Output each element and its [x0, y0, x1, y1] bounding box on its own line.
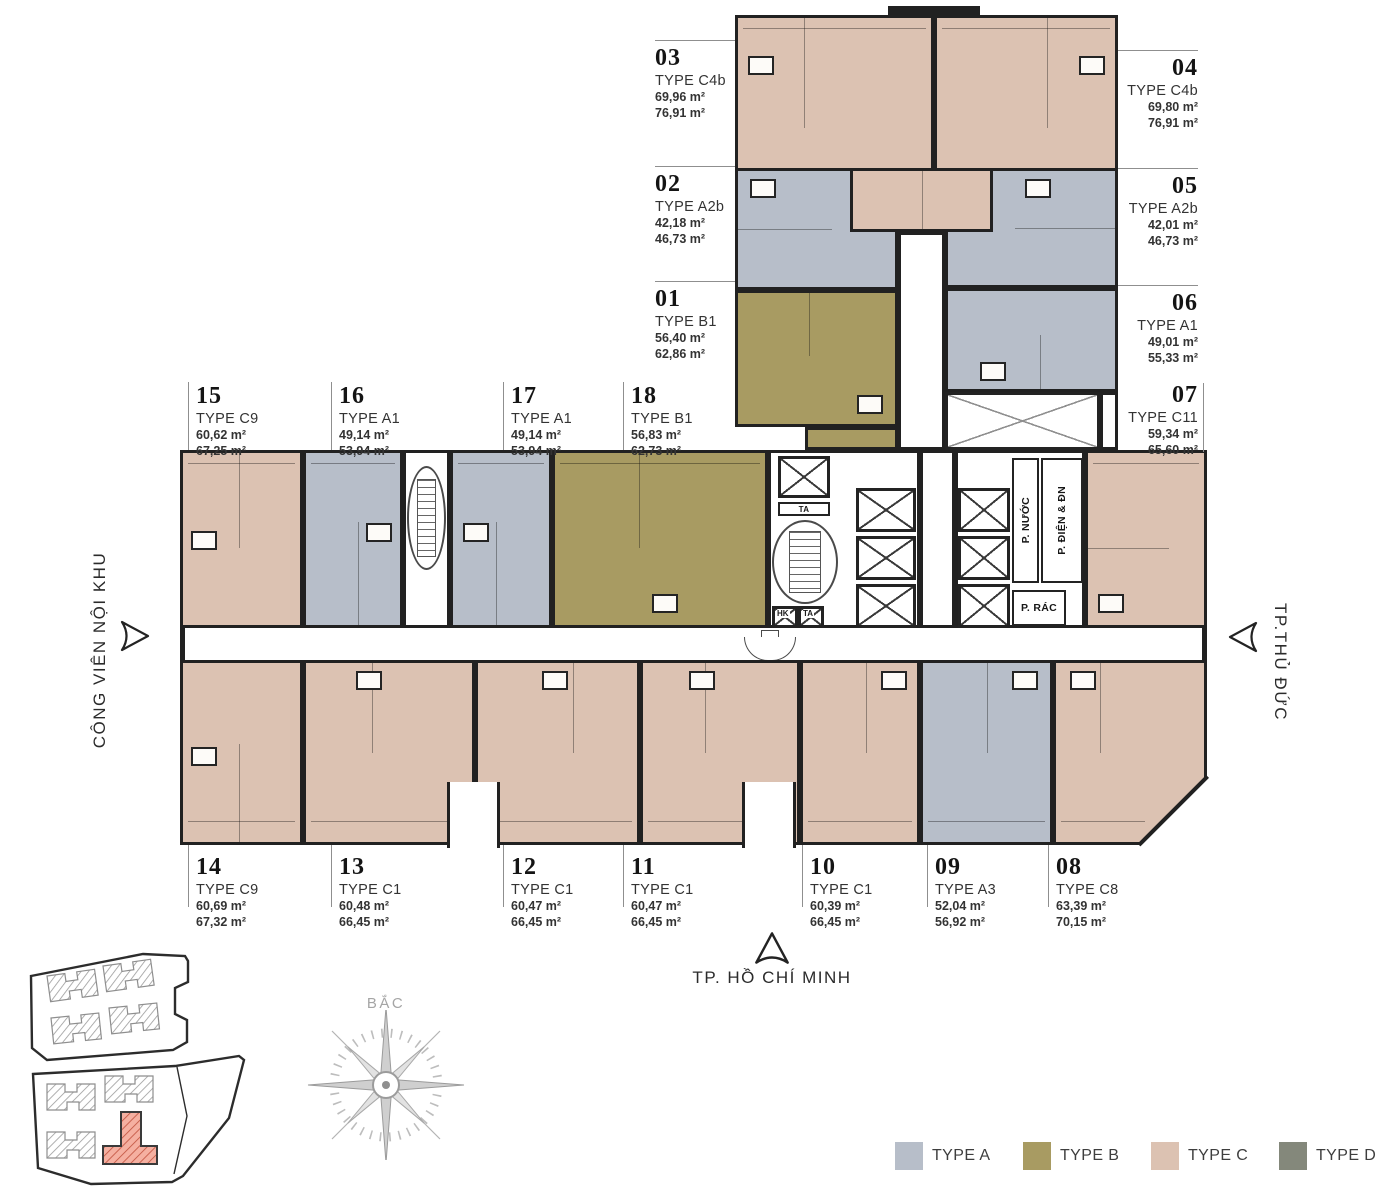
unit-11-label: 11 TYPE C1 60,47 m² 66,45 m²: [631, 855, 721, 931]
unit-area-net: 56,40 m²: [655, 330, 735, 346]
callout-line: [188, 382, 189, 450]
elevator-hk-icon: HK: [772, 606, 798, 628]
unit-type: TYPE C4b: [1118, 83, 1198, 99]
elevator-shaft-icon: [856, 536, 916, 580]
electrical-room: P. ĐIỆN & ĐN: [1041, 458, 1083, 583]
unit-area-gross: 67,32 m²: [196, 914, 286, 930]
unit-area-net: 49,14 m²: [339, 427, 429, 443]
floor-plan-page: TA HK TA P. NƯỚC P. ĐIỆN & ĐN P. RÁC: [0, 0, 1377, 1199]
unit-number: 01: [655, 287, 735, 312]
view-marker-west-icon: [120, 619, 150, 653]
unit-number: 16: [339, 384, 429, 409]
elevator-shaft-icon: [958, 488, 1010, 532]
unit-17: [450, 450, 552, 628]
callout-line: [331, 845, 332, 907]
legend-swatch-type-a: [895, 1142, 923, 1170]
unit-number: 10: [810, 855, 900, 880]
unit-14-label: 14 TYPE C9 60,69 m² 67,32 m²: [196, 855, 286, 931]
unit-area-gross: 66,45 m²: [511, 914, 601, 930]
unit-16-label: 16 TYPE A1 49,14 m² 53,94 m²: [339, 384, 429, 460]
unit-type: TYPE C8: [1056, 882, 1146, 898]
core-center-lobby: [920, 450, 955, 628]
bottom-notch: [447, 782, 500, 848]
unit-07: [1085, 450, 1207, 628]
unit-15-label: 15 TYPE C9 60,62 m² 67,25 m²: [196, 384, 286, 460]
unit-area-net: 69,80 m²: [1118, 99, 1198, 115]
unit-type: TYPE C11: [1124, 410, 1198, 426]
unit-area-net: 42,01 m²: [1118, 217, 1198, 233]
unit-number: 02: [655, 172, 735, 197]
unit-type: TYPE A2b: [1118, 201, 1198, 217]
unit-18-label: 18 TYPE B1 56,83 m² 62,73 m²: [631, 384, 721, 460]
view-marker-south-icon: [753, 931, 791, 965]
callout-line: [1048, 845, 1049, 907]
unit-03-label: 03 TYPE C4b 69,96 m² 76,91 m²: [655, 40, 735, 122]
unit-area-net: 60,47 m²: [511, 898, 601, 914]
unit-area-net: 60,48 m²: [339, 898, 429, 914]
unit-01: [735, 290, 898, 427]
unit-area-net: 60,69 m²: [196, 898, 286, 914]
tower-corridor: [898, 232, 945, 450]
unit-type: TYPE C1: [810, 882, 900, 898]
unit-13-label: 13 TYPE C1 60,48 m² 66,45 m²: [339, 855, 429, 931]
tower-center-kitchen-strip: [850, 168, 993, 232]
view-marker-east-icon: [1228, 620, 1258, 654]
unit-area-gross: 66,45 m²: [339, 914, 429, 930]
callout-line: [1203, 383, 1204, 452]
unit-type: TYPE C4b: [655, 73, 735, 89]
unit-number: 08: [1056, 855, 1146, 880]
unit-02-label: 02 TYPE A2b 42,18 m² 46,73 m²: [655, 166, 735, 248]
unit-10: [800, 660, 920, 845]
callout-line: [188, 845, 189, 907]
unit-type: TYPE A1: [511, 411, 601, 427]
callout-line: [503, 845, 504, 907]
elevator-ta-label: TA: [799, 505, 810, 514]
east-direction-label: TP.THỦ ĐỨC: [1270, 603, 1290, 721]
unit-number: 06: [1118, 291, 1198, 316]
corridor-lamp-arc-icon: [744, 637, 796, 661]
unit-area-gross: 66,45 m²: [631, 914, 721, 930]
elevator-shaft-icon: [958, 536, 1010, 580]
callout-line: [331, 382, 332, 450]
unit-type: TYPE A1: [1118, 318, 1198, 334]
unit-06-label: 06 TYPE A1 49,01 m² 55,33 m²: [1118, 285, 1198, 367]
unit-area-gross: 67,25 m²: [196, 443, 286, 459]
legend-label-type-d: TYPE D: [1316, 1142, 1376, 1170]
unit-12-label: 12 TYPE C1 60,47 m² 66,45 m²: [511, 855, 601, 931]
unit-area-gross: 62,73 m²: [631, 443, 721, 459]
unit-area-net: 49,01 m²: [1118, 334, 1198, 350]
unit-type: TYPE C9: [196, 411, 286, 427]
unit-08-label: 08 TYPE C8 63,39 m² 70,15 m²: [1056, 855, 1146, 931]
unit-type: TYPE A1: [339, 411, 429, 427]
legend-label-type-b: TYPE B: [1060, 1142, 1119, 1170]
elevator-shaft-icon: [856, 584, 916, 628]
unit-type: TYPE B1: [631, 411, 721, 427]
legend-label-type-c: TYPE C: [1188, 1142, 1248, 1170]
elevator-shaft-icon: [778, 456, 830, 498]
unit-type: TYPE B1: [655, 314, 735, 330]
unit-10-label: 10 TYPE C1 60,39 m² 66,45 m²: [810, 855, 900, 931]
unit-area-gross: 46,73 m²: [1118, 233, 1198, 249]
unit-area-gross: 55,33 m²: [1118, 350, 1198, 366]
unit-04-label: 04 TYPE C4b 69,80 m² 76,91 m²: [1118, 50, 1198, 132]
unit-number: 17: [511, 384, 601, 409]
unit-01-label: 01 TYPE B1 56,40 m² 62,86 m²: [655, 281, 735, 363]
unit-area-net: 59,34 m²: [1124, 426, 1198, 442]
unit-01-extension: [805, 427, 898, 450]
tower-void-side: [1100, 392, 1118, 450]
legend-swatch-type-c: [1151, 1142, 1179, 1170]
elevator-ta2-label: TA: [802, 610, 814, 618]
unit-number: 14: [196, 855, 286, 880]
unit-05-label: 05 TYPE A2b 42,01 m² 46,73 m²: [1118, 168, 1198, 250]
legend-label-type-a: TYPE A: [932, 1142, 990, 1170]
corridor-west-cap: [180, 628, 185, 660]
unit-14: [180, 660, 303, 845]
unit-area-net: 60,62 m²: [196, 427, 286, 443]
unit-09-label: 09 TYPE A3 52,04 m² 56,92 m²: [935, 855, 1025, 931]
unit-area-gross: 46,73 m²: [655, 231, 735, 247]
unit-area-net: 60,47 m²: [631, 898, 721, 914]
site-key-plan: [25, 946, 247, 1194]
bottom-notch: [742, 782, 796, 848]
unit-type: TYPE C1: [631, 882, 721, 898]
unit-number: 18: [631, 384, 721, 409]
south-direction-label: TP. HỒ CHÍ MINH: [692, 968, 851, 988]
unit-area-gross: 53,94 m²: [339, 443, 429, 459]
callout-line: [623, 845, 624, 907]
stair-oval-west-icon: [407, 466, 446, 570]
unit-18: [552, 450, 768, 628]
unit-area-gross: 76,91 m²: [1118, 115, 1198, 131]
callout-line: [927, 845, 928, 907]
elevator-ta-bar: TA: [778, 502, 830, 516]
unit-area-gross: 62,86 m²: [655, 346, 735, 362]
unit-number: 05: [1118, 174, 1198, 199]
unit-06: [945, 288, 1118, 392]
unit-number: 04: [1118, 56, 1198, 81]
unit-number: 07: [1124, 383, 1198, 408]
callout-line: [623, 382, 624, 450]
elevator-ta2-icon: TA: [798, 606, 824, 628]
electrical-room-label: P. ĐIỆN & ĐN: [1056, 486, 1068, 555]
unit-type: TYPE A3: [935, 882, 1025, 898]
unit-17-label: 17 TYPE A1 49,14 m² 53,94 m²: [511, 384, 601, 460]
unit-16: [303, 450, 403, 628]
unit-area-net: 63,39 m²: [1056, 898, 1146, 914]
callout-line: [503, 382, 504, 450]
water-room-label: P. NƯỚC: [1020, 497, 1032, 543]
trash-room-label: P. RÁC: [1021, 602, 1057, 614]
unit-area-net: 56,83 m²: [631, 427, 721, 443]
elevator-shaft-icon: [856, 488, 916, 532]
unit-area-gross: 76,91 m²: [655, 105, 735, 121]
unit-type: TYPE C9: [196, 882, 286, 898]
unit-area-gross: 66,45 m²: [810, 914, 900, 930]
unit-15: [180, 450, 303, 628]
unit-number: 15: [196, 384, 286, 409]
callout-line: [802, 845, 803, 907]
unit-number: 12: [511, 855, 601, 880]
unit-area-gross: 65,60 m²: [1124, 442, 1198, 458]
legend-swatch-type-b: [1023, 1142, 1051, 1170]
elevator-hk-label: HK: [776, 610, 790, 618]
unit-area-gross: 53,94 m²: [511, 443, 601, 459]
unit-07-label: 07 TYPE C11 59,34 m² 65,60 m²: [1124, 383, 1198, 459]
unit-type: TYPE C1: [511, 882, 601, 898]
unit-area-gross: 70,15 m²: [1056, 914, 1146, 930]
unit-area-net: 52,04 m²: [935, 898, 1025, 914]
tower-open-void: [945, 392, 1100, 450]
unit-type: TYPE A2b: [655, 199, 735, 215]
unit-type: TYPE C1: [339, 882, 429, 898]
unit-number: 13: [339, 855, 429, 880]
unit-number: 11: [631, 855, 721, 880]
unit-area-net: 69,96 m²: [655, 89, 735, 105]
unit-08: [1053, 660, 1207, 845]
unit-area-net: 60,39 m²: [810, 898, 900, 914]
compass-rose-icon: [306, 1010, 466, 1160]
unit-09: [920, 660, 1053, 845]
unit-number: 03: [655, 46, 735, 71]
corridor-east-cap: [1202, 628, 1207, 660]
trash-room: P. RÁC: [1012, 590, 1066, 626]
water-room: P. NƯỚC: [1012, 458, 1039, 583]
elevator-shaft-icon: [958, 584, 1010, 628]
unit-area-net: 49,14 m²: [511, 427, 601, 443]
unit-area-gross: 56,92 m²: [935, 914, 1025, 930]
unit-area-net: 42,18 m²: [655, 215, 735, 231]
west-direction-label: CÔNG VIÊN NỘI KHU: [90, 552, 110, 748]
legend-swatch-type-d: [1279, 1142, 1307, 1170]
stair-oval-core-icon: [772, 520, 838, 604]
unit-number: 09: [935, 855, 1025, 880]
